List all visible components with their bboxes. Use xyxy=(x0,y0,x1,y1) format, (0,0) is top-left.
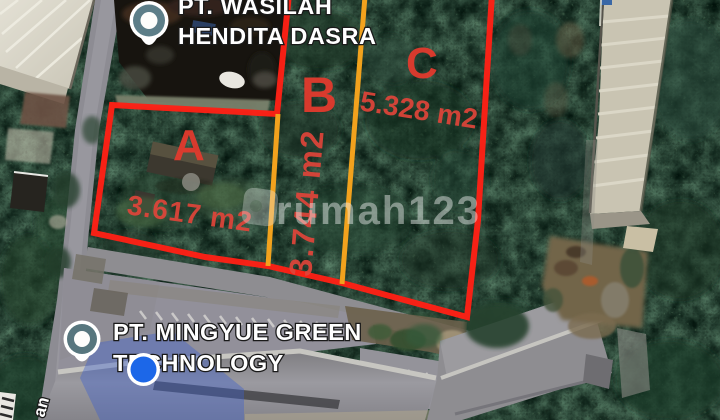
svg-text:PT. MINGYUE GREEN: PT. MINGYUE GREEN xyxy=(113,319,362,345)
svg-text:A: A xyxy=(173,121,205,170)
svg-text:HENDITA DASRA: HENDITA DASRA xyxy=(178,23,376,49)
svg-text:rumah123: rumah123 xyxy=(276,189,481,233)
svg-text:PT. WASILAH: PT. WASILAH xyxy=(178,0,332,19)
svg-text:B: B xyxy=(301,67,337,123)
svg-text:C: C xyxy=(406,39,438,88)
